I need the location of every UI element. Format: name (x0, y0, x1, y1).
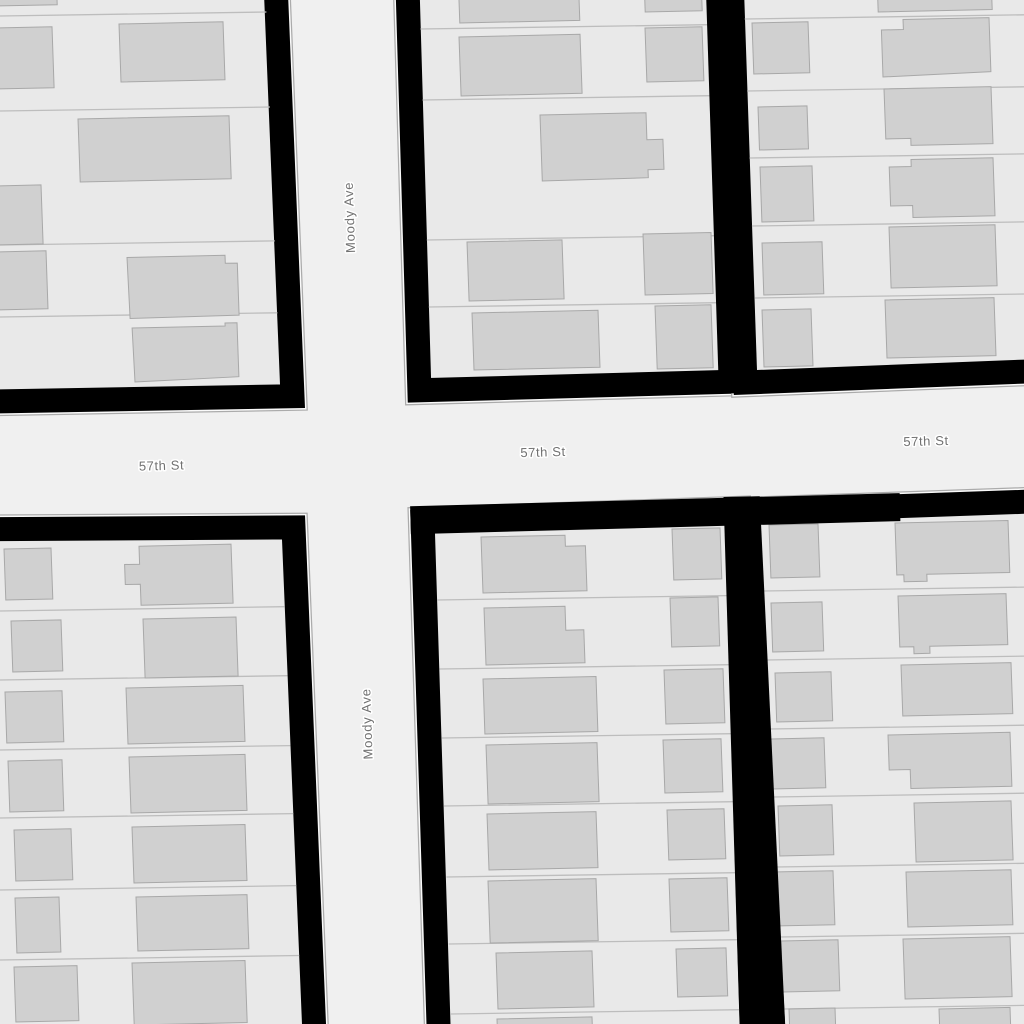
svg-text:Moody Ave: Moody Ave (358, 688, 375, 760)
svg-text:57th St: 57th St (903, 433, 949, 449)
svg-text:Moody Ave: Moody Ave (341, 181, 358, 253)
svg-text:57th St: 57th St (520, 444, 566, 460)
svg-text:57th St: 57th St (139, 457, 185, 473)
